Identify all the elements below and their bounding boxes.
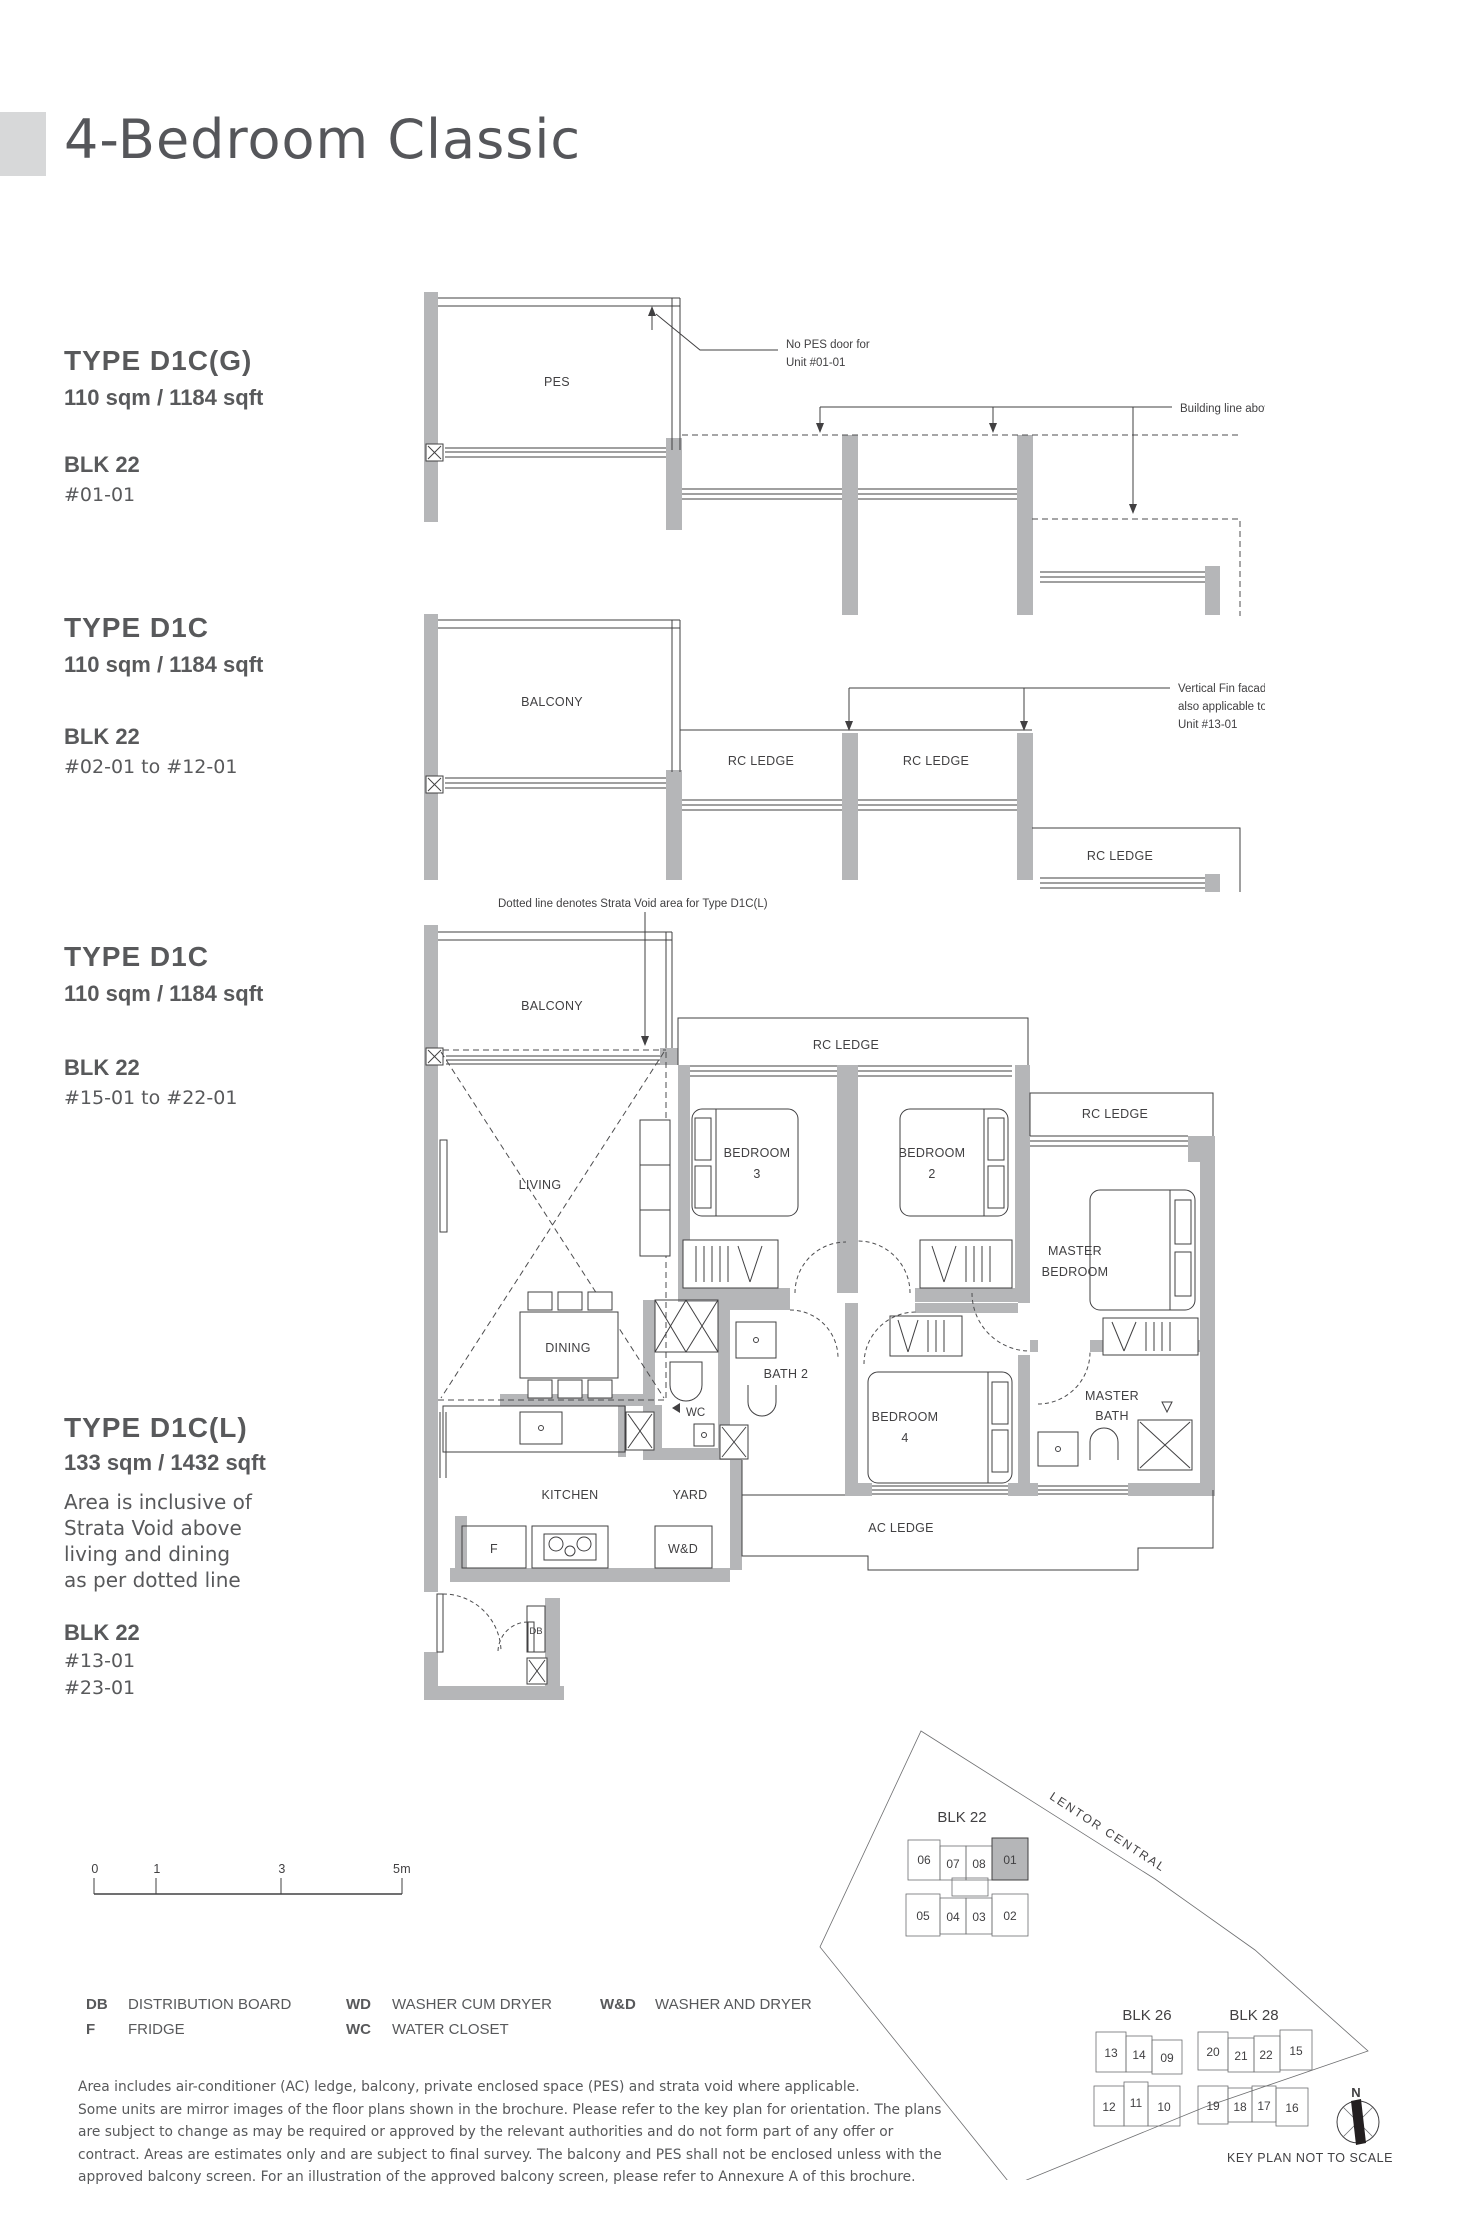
plan2-fin-note-line3: Unit #13-01	[1178, 719, 1237, 731]
plan3-master-bedroom-label-1: MASTER	[1048, 1244, 1102, 1258]
s4-note-line4: as per dotted line	[64, 1568, 241, 1593]
keyplan-unit-label: 12	[1102, 2100, 1116, 2114]
s1-units: #01-01	[64, 484, 135, 506]
plan3-db-label: DB	[529, 1626, 542, 1637]
compass-north-label: N	[1351, 2085, 1360, 2100]
legend-db-label: DISTRIBUTION BOARD	[128, 1996, 291, 2013]
keyplan-blk22-label: BLK 22	[937, 1809, 986, 1826]
plan3-rc-ledge-top-label: RC LEDGE	[813, 1038, 879, 1052]
plan3-balcony-label: BALCONY	[521, 999, 583, 1013]
keyplan-unit-label: 10	[1157, 2100, 1171, 2114]
keyplan-unit-label: 03	[972, 1910, 986, 1924]
keyplan-blk28-cluster: 20 21 22 15 19 18 17 16	[1198, 2030, 1312, 2126]
plan1-pes-label: PES	[544, 375, 570, 389]
s4-units-2: #23-01	[64, 1677, 135, 1699]
plan3-ac-ledge-label: AC LEDGE	[868, 1521, 934, 1535]
keyplan-unit-label: 07	[946, 1857, 960, 1871]
floor-plan-d1cg: PES No PES door for Unit #01-01 Building…	[415, 275, 1265, 620]
s3-units: #15-01 to #22-01	[64, 1087, 237, 1109]
scale-bar: 0 1 3 5m	[78, 1845, 418, 1905]
plan3-wc-fixtures	[655, 1300, 718, 1446]
s4-units-1: #13-01	[64, 1650, 135, 1672]
keyplan-caption: KEY PLAN NOT TO SCALE	[1227, 2151, 1393, 2165]
key-plan: LENTOR CENTRAL BLK 22 06 07 08 01 05 04 …	[810, 1700, 1465, 2180]
s4-area: 133 sqm / 1432 sqft	[64, 1450, 266, 1476]
plan1-note-pes-line2: Unit #01-01	[786, 357, 845, 369]
legend-wd-abbr: WD	[346, 1996, 371, 2013]
page-title: 4-Bedroom Classic	[64, 108, 581, 171]
plan3-rc-ledge-right-label: RC LEDGE	[1082, 1107, 1148, 1121]
plan3-wc-label: WC	[686, 1407, 705, 1419]
s4-note-line2: Strata Void above	[64, 1516, 242, 1541]
keyplan-unit-label: 15	[1289, 2044, 1303, 2058]
plan3-master-bedroom-label-2: BEDROOM	[1042, 1265, 1109, 1279]
plan1-note-pes-line1: No PES door for	[786, 339, 870, 351]
legend-db-abbr: DB	[86, 1996, 108, 2013]
keyplan-blk28-label: BLK 28	[1229, 2007, 1278, 2024]
legend-f-abbr: F	[86, 2021, 95, 2038]
legend-wnd-abbr: W&D	[600, 1996, 636, 2013]
plan3-bedroom4-label-2: 4	[901, 1431, 908, 1445]
s4-blk: BLK 22	[64, 1620, 140, 1646]
plan1-note-building-line: Building line above	[1180, 403, 1265, 415]
plan3-shaft-dining	[626, 1412, 654, 1450]
s1-type-label: TYPE D1C(G)	[64, 345, 252, 377]
plan1-annotations	[656, 314, 1172, 514]
plan3-bath2-label: BATH 2	[764, 1367, 809, 1381]
keyplan-blk22-cluster: 06 07 08 01 05 04 03 02	[906, 1838, 1028, 1936]
disclaimer-line5: approved balcony screen. For an illustra…	[78, 2166, 916, 2189]
s2-blk: BLK 22	[64, 724, 140, 750]
keyplan-unit-label: 22	[1259, 2048, 1273, 2062]
plan3-entrance	[437, 1594, 547, 1684]
plan1-building-line	[682, 435, 1240, 616]
plan2-rc-ledge-label-1: RC LEDGE	[728, 754, 794, 768]
keyplan-unit-label: 14	[1132, 2048, 1146, 2062]
plan3-bedroom4-furniture	[868, 1316, 1012, 1483]
keyplan-unit-label: 21	[1234, 2049, 1248, 2063]
plan3-kitchen-label: KITCHEN	[542, 1488, 599, 1502]
plan3-bedroom2-label-1: BEDROOM	[899, 1146, 966, 1160]
s2-area: 110 sqm / 1184 sqft	[64, 652, 263, 678]
plan3-living-label: LIVING	[519, 1178, 562, 1192]
legend-wnd-label: WASHER AND DRYER	[655, 1996, 812, 2013]
keyplan-unit-label: 19	[1206, 2099, 1220, 2113]
scale-tick-5m: 5m	[393, 1862, 411, 1876]
plan1-pes-room	[438, 298, 680, 450]
keyplan-unit-label: 05	[916, 1909, 930, 1923]
s4-note-line3: living and dining	[64, 1542, 230, 1567]
compass-icon: N	[1337, 2085, 1379, 2145]
plan2-balcony-label: BALCONY	[521, 695, 583, 709]
plan3-yard-label: YARD	[672, 1488, 707, 1502]
plan2-rc-ledge-label-2: RC LEDGE	[903, 754, 969, 768]
plan1-window-pes	[426, 444, 666, 461]
disclaimer-line3: are subject to change as may be required…	[78, 2121, 893, 2144]
s2-type-label: TYPE D1C	[64, 612, 209, 644]
plan3-dining-label: DINING	[545, 1341, 591, 1355]
keyplan-unit-label: 17	[1257, 2099, 1271, 2113]
keyplan-unit-label: 04	[946, 1910, 960, 1924]
s3-type-label: TYPE D1C	[64, 941, 209, 973]
s2-units: #02-01 to #12-01	[64, 756, 237, 778]
keyplan-unit-label: 08	[972, 1857, 986, 1871]
compass-needle	[1351, 2099, 1366, 2145]
scale-tick-3: 3	[278, 1862, 285, 1876]
plan2-rc-ledge-label-3: RC LEDGE	[1087, 849, 1153, 863]
keyplan-unit-label: 02	[1003, 1909, 1017, 1923]
legend-wc-abbr: WC	[346, 2021, 371, 2038]
keyplan-unit-label: 11	[1130, 2096, 1143, 2110]
plan3-bedroom3-label-2: 3	[753, 1167, 760, 1181]
plan3-bedroom3-furniture	[683, 1109, 798, 1288]
plan2-fin-note-line1: Vertical Fin facade	[1178, 683, 1265, 695]
keyplan-unit-label: 18	[1233, 2100, 1247, 2114]
plan3-strata-note-label: Dotted line denotes Strata Void area for…	[498, 898, 768, 910]
plan3-bedroom2-label-2: 2	[928, 1167, 935, 1181]
keyplan-unit-label: 06	[917, 1853, 931, 1867]
legend-f-label: FRIDGE	[128, 2021, 185, 2038]
scale-tick-0: 0	[91, 1862, 98, 1876]
scale-tick-1: 1	[153, 1862, 160, 1876]
s4-note-line1: Area is inclusive of	[64, 1490, 252, 1515]
header-accent-square	[0, 112, 46, 176]
plan3-wd-label: W&D	[668, 1542, 698, 1556]
s3-area: 110 sqm / 1184 sqft	[64, 981, 263, 1007]
keyplan-road-label: LENTOR CENTRAL	[1047, 1789, 1169, 1875]
keyplan-unit-label: 20	[1206, 2045, 1220, 2059]
plan3-master-bath-label-1: MASTER	[1085, 1389, 1139, 1403]
keyplan-blk26-label: BLK 26	[1122, 2007, 1171, 2024]
keyplan-unit-label: 01	[1003, 1853, 1017, 1867]
s1-blk: BLK 22	[64, 452, 140, 478]
plan3-fridge-label: F	[490, 1542, 498, 1556]
plan2-fin-note-line2: also applicable to	[1178, 701, 1265, 713]
keyplan-unit-label: 13	[1104, 2046, 1118, 2060]
plan3-bedroom4-label-1: BEDROOM	[872, 1410, 939, 1424]
plan3-bedroom2-furniture	[900, 1109, 1012, 1288]
s3-blk: BLK 22	[64, 1055, 140, 1081]
plan3-master-bath-label-2: BATH	[1095, 1409, 1129, 1423]
keyplan-unit-label: 16	[1285, 2101, 1299, 2115]
legend-wc-label: WATER CLOSET	[392, 2021, 509, 2038]
plan3-bedroom3-label-1: BEDROOM	[724, 1146, 791, 1160]
plan2-annotations	[845, 688, 1170, 731]
floor-plan-d1c-mid: BALCONY RC LEDGE RC LEDGE RC LEDGE Verti…	[415, 598, 1265, 893]
floor-plan-d1c-main: Dotted line denotes Strata Void area for…	[415, 893, 1265, 1708]
s1-area: 110 sqm / 1184 sqft	[64, 385, 263, 411]
keyplan-blk26-cluster: 13 14 09 12 11 10	[1094, 2032, 1182, 2126]
legend-wd-label: WASHER CUM DRYER	[392, 1996, 552, 2013]
s4-type-label: TYPE D1C(L)	[64, 1412, 248, 1444]
disclaimer-line1: Area includes air-conditioner (AC) ledge…	[78, 2076, 860, 2099]
keyplan-unit-label: 09	[1160, 2051, 1174, 2065]
